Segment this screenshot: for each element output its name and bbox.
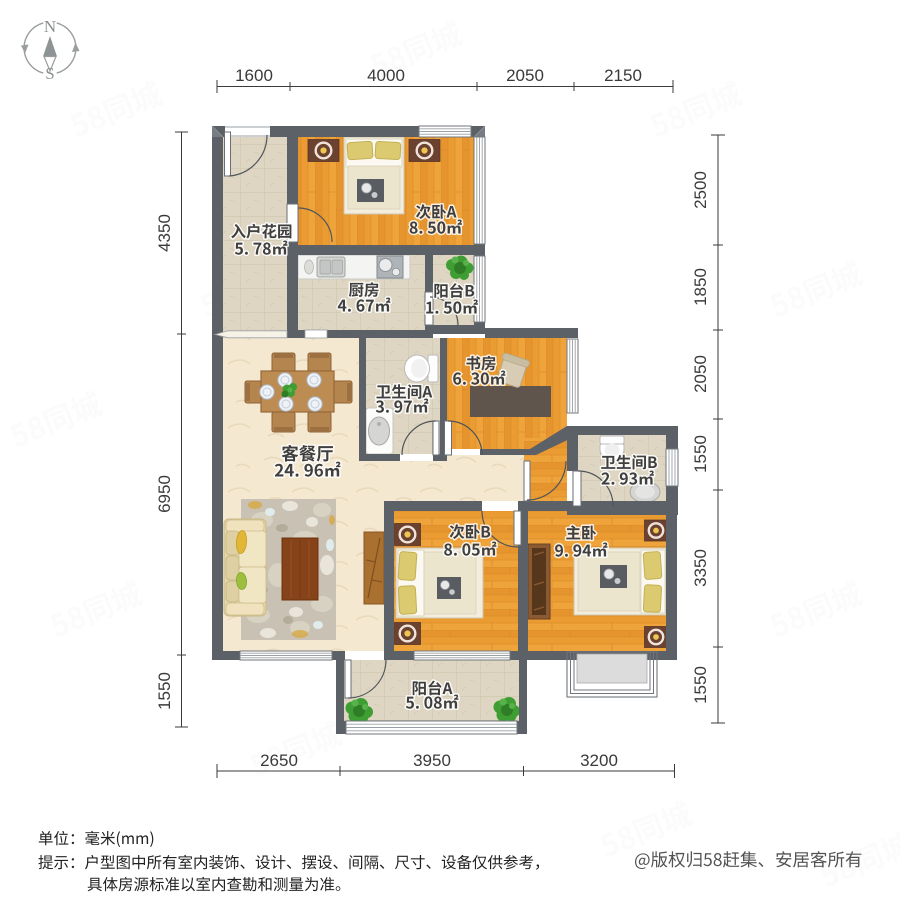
svg-text:1550: 1550 [691,435,710,473]
svg-text:3350: 3350 [691,549,710,587]
svg-text:4000: 4000 [367,66,405,85]
svg-text:3200: 3200 [580,751,618,770]
svg-text:1600: 1600 [235,66,273,85]
svg-text:1850: 1850 [691,268,710,306]
svg-text:3950: 3950 [413,751,451,770]
svg-text:N: N [44,17,56,36]
svg-text:1550: 1550 [691,666,710,704]
svg-text:6950: 6950 [155,475,174,513]
svg-text:2650: 2650 [260,751,298,770]
svg-text:2150: 2150 [604,66,642,85]
svg-text:4350: 4350 [155,214,174,252]
svg-text:2050: 2050 [506,66,544,85]
svg-text:2050: 2050 [691,355,710,393]
svg-text:S: S [45,64,54,83]
svg-text:1550: 1550 [155,672,174,710]
svg-text:2500: 2500 [691,171,710,209]
